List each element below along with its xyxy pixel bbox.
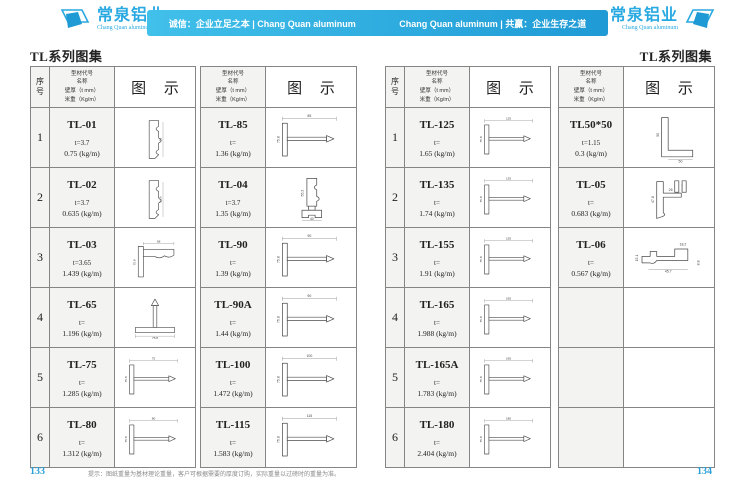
profile-spec-cell: TL50*50t=1.150.3 (kg/m) <box>559 108 624 168</box>
profile-thickness: t= <box>201 319 265 327</box>
profile-row <box>559 348 715 408</box>
row-index: 1 <box>386 108 405 168</box>
row-index: 3 <box>31 228 50 288</box>
series-title-right: TL系列图集 <box>640 46 712 65</box>
profile-code: TL-90 <box>201 239 265 251</box>
profile-weight: 0.3 (kg/m) <box>559 149 623 158</box>
col-header-index: 序号 <box>386 67 405 108</box>
row-index: 6 <box>386 408 405 468</box>
svg-text:75.8: 75.8 <box>277 316 281 323</box>
profile-row: TL-115t=1.583 (kg/m)11575.8 <box>201 408 357 468</box>
svg-text:155: 155 <box>506 236 511 240</box>
profile-diagram-cell: 58 <box>115 108 196 168</box>
profile-table: 序号型材代号名称壁厚（t mm）米重（Kg/m）图 示1TL-125t=1.65… <box>385 66 551 468</box>
profile-diagram-cell: 15575.8 <box>470 228 551 288</box>
profile-row: TL-90t=1.39 (kg/m)9075.8 <box>201 228 357 288</box>
header-banner: 诚信：企业立足之本 | Chang Quan aluminum Chang Qu… <box>147 10 608 36</box>
page-number-left: 133 <box>30 466 45 477</box>
table-header-row: 型材代号名称壁厚（t mm）米重（Kg/m）图 示 <box>559 67 715 108</box>
profile-spec-cell: TL-155t=1.91 (kg/m) <box>405 228 470 288</box>
profile-table-2: 型材代号名称壁厚（t mm）米重（Kg/m）图 示TL-85t=1.36 (kg… <box>200 66 357 468</box>
svg-text:47.8: 47.8 <box>651 196 655 203</box>
profile-row: 5TL-75t=1.285 (kg/m)7575.8 <box>31 348 196 408</box>
profile-thickness: t= <box>405 439 469 447</box>
profile-spec-cell: TL-75t=1.285 (kg/m) <box>50 348 115 408</box>
svg-text:90: 90 <box>307 294 311 298</box>
profile-row: 3TL-03t=3.651.439 (kg/m)6875.8 <box>31 228 196 288</box>
profile-spec-cell: TL-05t=0.683 (kg/m) <box>559 168 624 228</box>
profile-weight: 1.312 (kg/m) <box>50 449 114 458</box>
svg-text:85: 85 <box>307 114 311 118</box>
profile-diagram-cell: 10075.8 <box>266 348 357 408</box>
profile-code: TL-04 <box>201 179 265 191</box>
profile-code: TL-03 <box>50 239 114 251</box>
profile-diagram: 18075.8 <box>470 410 550 466</box>
profile-code: TL-155 <box>405 239 469 251</box>
profile-spec-cell: TL-06t=0.567 (kg/m) <box>559 228 624 288</box>
profile-code: TL-115 <box>201 419 265 431</box>
profile-spec-cell: TL-165t=1.988 (kg/m) <box>405 288 470 348</box>
profile-thickness: t=3.65 <box>50 259 114 267</box>
profile-thickness: t=3.7 <box>50 139 114 147</box>
svg-text:18.2: 18.2 <box>680 242 687 246</box>
profile-code: TL-100 <box>201 359 265 371</box>
profile-diagram: 16575.8 <box>470 290 550 346</box>
profile-spec-cell: TL-80t=1.312 (kg/m) <box>50 408 115 468</box>
svg-text:165: 165 <box>506 296 511 300</box>
profile-diagram-cell <box>624 288 715 348</box>
profile-spec-cell <box>559 288 624 348</box>
row-index: 4 <box>386 288 405 348</box>
profile-code: TL-01 <box>50 119 114 131</box>
profile-diagram: 16575.8 <box>470 350 550 406</box>
banner-slogan-left: 诚信：企业立足之本 | Chang Quan aluminum <box>169 17 356 30</box>
profile-diagram-cell: 55.240 <box>266 168 357 228</box>
profile-code: TL-02 <box>50 179 114 191</box>
col-header-spec: 型材代号名称壁厚（t mm）米重（Kg/m） <box>405 67 470 108</box>
profile-row: 6TL-180t=2.404 (kg/m)18075.8 <box>386 408 551 468</box>
svg-text:75.8: 75.8 <box>277 376 281 383</box>
profile-diagram: 7575.8 <box>115 350 195 406</box>
profile-row: 2TL-02t=3.70.635 (kg/m)54.6 <box>31 168 196 228</box>
col-header-spec: 型材代号名称壁厚（t mm）米重（Kg/m） <box>50 67 115 108</box>
brand-name: 常泉铝业 <box>610 8 678 24</box>
profile-code: TL-165A <box>405 359 469 371</box>
profile-code: TL-165 <box>405 299 469 311</box>
profile-row: 2TL-135t=1.74 (kg/m)13575.8 <box>386 168 551 228</box>
profile-table: 型材代号名称壁厚（t mm）米重（Kg/m）图 示TL50*50t=1.150.… <box>558 66 715 468</box>
row-index: 5 <box>31 348 50 408</box>
profile-table-1: 序号型材代号名称壁厚（t mm）米重（Kg/m）图 示1TL-01t=3.70.… <box>30 66 196 468</box>
profile-row: TL50*50t=1.150.3 (kg/m)5050 <box>559 108 715 168</box>
profile-weight: 0.567 (kg/m) <box>559 269 623 278</box>
profile-code: TL-06 <box>559 239 623 251</box>
profile-row: 5TL-165At=1.783 (kg/m)16575.8 <box>386 348 551 408</box>
page-number-right: 134 <box>697 466 712 477</box>
row-index: 2 <box>386 168 405 228</box>
profile-spec-cell: TL-03t=3.651.439 (kg/m) <box>50 228 115 288</box>
svg-text:75.8: 75.8 <box>479 316 483 322</box>
profile-diagram-cell: 16575.8 <box>470 288 551 348</box>
profile-spec-cell: TL-04t=3.71.35 (kg/m) <box>201 168 266 228</box>
profile-spec-cell: TL-180t=2.404 (kg/m) <box>405 408 470 468</box>
profile-thickness: t= <box>559 259 623 267</box>
profile-table: 序号型材代号名称壁厚（t mm）米重（Kg/m）图 示1TL-01t=3.70.… <box>30 66 196 468</box>
svg-text:80: 80 <box>152 416 156 420</box>
profile-row: 6TL-80t=1.312 (kg/m)8075.8 <box>31 408 196 468</box>
profile-row <box>559 288 715 348</box>
profile-thickness: t= <box>559 199 623 207</box>
svg-text:58: 58 <box>159 137 163 141</box>
svg-text:75.8: 75.8 <box>133 259 137 265</box>
svg-text:75.8: 75.8 <box>152 336 158 340</box>
svg-text:40: 40 <box>310 216 314 220</box>
svg-text:125: 125 <box>506 116 511 120</box>
col-header-index: 序号 <box>31 67 50 108</box>
svg-text:75.8: 75.8 <box>479 376 483 382</box>
profile-weight: 1.783 (kg/m) <box>405 389 469 398</box>
profile-diagram-cell: 18075.8 <box>470 408 551 468</box>
profile-diagram-cell: 6875.8 <box>115 228 196 288</box>
profile-thickness: t=3.7 <box>201 199 265 207</box>
row-index: 2 <box>31 168 50 228</box>
profile-row: 4TL-165t=1.988 (kg/m)16575.8 <box>386 288 551 348</box>
profile-thickness: t= <box>405 139 469 147</box>
profile-diagram-cell: 54.6 <box>115 168 196 228</box>
footer-note: 提示：图纸重量为基材理论重量，客户可根据需要的厚度订购，实际重量以过磅时的重量为… <box>88 469 340 478</box>
svg-text:8.8: 8.8 <box>696 260 700 265</box>
profile-spec-cell <box>559 348 624 408</box>
profile-thickness: t= <box>405 199 469 207</box>
svg-text:26: 26 <box>669 188 673 192</box>
profile-code: TL-125 <box>405 119 469 131</box>
brand-diamond-icon <box>56 6 92 34</box>
profile-spec-cell: TL-65t=1.196 (kg/m) <box>50 288 115 348</box>
col-header-diagram: 图 示 <box>115 67 196 108</box>
profile-spec-cell: TL-85t=1.36 (kg/m) <box>201 108 266 168</box>
profile-code: TL-180 <box>405 419 469 431</box>
profile-diagram-cell: 9075.8 <box>266 228 357 288</box>
profile-weight: 1.91 (kg/m) <box>405 269 469 278</box>
profile-code: TL-135 <box>405 179 469 191</box>
brand-subtitle: Chang Quan aluminum <box>610 24 678 32</box>
profile-row: TL-05t=0.683 (kg/m)47.8262124.5 <box>559 168 715 228</box>
profile-row: TL-04t=3.71.35 (kg/m)55.240 <box>201 168 357 228</box>
profile-row: 4TL-65t=1.196 (kg/m)75.8 <box>31 288 196 348</box>
profile-code: TL-80 <box>50 419 114 431</box>
profile-weight: 1.285 (kg/m) <box>50 389 114 398</box>
profile-diagram: 8575.8 <box>266 110 356 166</box>
svg-text:115: 115 <box>307 414 313 418</box>
table-header-row: 序号型材代号名称壁厚（t mm）米重（Kg/m）图 示 <box>386 67 551 108</box>
profile-diagram: 18.215.18.845.7 <box>624 230 714 286</box>
profile-spec-cell: TL-90t=1.39 (kg/m) <box>201 228 266 288</box>
profile-row: 1TL-125t=1.65 (kg/m)12575.8 <box>386 108 551 168</box>
brand-diamond-icon <box>683 6 719 34</box>
col-header-spec: 型材代号名称壁厚（t mm）米重（Kg/m） <box>559 67 624 108</box>
profile-weight: 1.65 (kg/m) <box>405 149 469 158</box>
profile-weight: 2.404 (kg/m) <box>405 449 469 458</box>
profile-diagram-cell: 7575.8 <box>115 348 196 408</box>
profile-diagram: 47.8262124.5 <box>624 170 714 226</box>
profile-spec-cell: TL-90At=1.44 (kg/m) <box>201 288 266 348</box>
svg-text:15.1: 15.1 <box>635 254 639 261</box>
profile-weight: 1.74 (kg/m) <box>405 209 469 218</box>
col-header-diagram: 图 示 <box>266 67 357 108</box>
profile-row: 1TL-01t=3.70.75 (kg/m)58 <box>31 108 196 168</box>
profile-row: TL-85t=1.36 (kg/m)8575.8 <box>201 108 357 168</box>
profile-row: TL-06t=0.567 (kg/m)18.215.18.845.7 <box>559 228 715 288</box>
profile-spec-cell: TL-115t=1.583 (kg/m) <box>201 408 266 468</box>
profile-weight: 0.75 (kg/m) <box>50 149 114 158</box>
profile-weight: 1.196 (kg/m) <box>50 329 114 338</box>
svg-text:75.8: 75.8 <box>124 436 128 442</box>
svg-text:50: 50 <box>679 159 683 163</box>
brand-logo-right: 常泉铝业 Chang Quan aluminum <box>610 6 719 34</box>
svg-text:45.7: 45.7 <box>665 269 672 273</box>
profile-thickness: t=1.15 <box>559 139 623 147</box>
profile-diagram-cell: 12575.8 <box>470 108 551 168</box>
profile-weight: 1.36 (kg/m) <box>201 149 265 158</box>
profile-spec-cell: TL-125t=1.65 (kg/m) <box>405 108 470 168</box>
profile-diagram: 54.6 <box>115 170 195 226</box>
profile-spec-cell: TL-01t=3.70.75 (kg/m) <box>50 108 115 168</box>
col-header-diagram: 图 示 <box>470 67 551 108</box>
svg-text:75.8: 75.8 <box>277 436 281 443</box>
svg-text:165: 165 <box>506 356 511 360</box>
profile-weight: 1.472 (kg/m) <box>201 389 265 398</box>
profile-weight: 1.39 (kg/m) <box>201 269 265 278</box>
svg-text:75.8: 75.8 <box>277 256 281 263</box>
profile-diagram: 6875.8 <box>115 230 195 286</box>
profile-thickness: t= <box>405 319 469 327</box>
svg-text:75.8: 75.8 <box>479 196 483 202</box>
profile-diagram-cell <box>624 348 715 408</box>
profile-diagram-cell: 9075.8 <box>266 288 357 348</box>
row-index: 4 <box>31 288 50 348</box>
profile-code: TL-85 <box>201 119 265 131</box>
svg-text:100: 100 <box>306 354 312 358</box>
profile-diagram: 13575.8 <box>470 170 550 226</box>
profile-diagram: 12575.8 <box>470 110 550 166</box>
table-header-row: 序号型材代号名称壁厚（t mm）米重（Kg/m）图 示 <box>31 67 196 108</box>
profile-diagram: 11575.8 <box>266 410 356 466</box>
profile-diagram: 58 <box>115 110 195 166</box>
profile-weight: 1.44 (kg/m) <box>201 329 265 338</box>
profile-diagram-cell: 18.215.18.845.7 <box>624 228 715 288</box>
col-header-spec: 型材代号名称壁厚（t mm）米重（Kg/m） <box>201 67 266 108</box>
profile-diagram: 9075.8 <box>266 230 356 286</box>
catalog-spread: 常泉铝业 Chang Quan aluminum 诚信：企业立足之本 | Cha… <box>0 0 730 498</box>
profile-diagram: 9075.8 <box>266 290 356 346</box>
svg-text:90: 90 <box>307 234 311 238</box>
profile-row <box>559 408 715 468</box>
profile-code: TL-75 <box>50 359 114 371</box>
profile-diagram-cell: 11575.8 <box>266 408 357 468</box>
profile-diagram-cell: 8075.8 <box>115 408 196 468</box>
svg-text:54.6: 54.6 <box>159 196 163 202</box>
profile-thickness: t= <box>201 379 265 387</box>
profile-spec-cell: TL-135t=1.74 (kg/m) <box>405 168 470 228</box>
svg-text:75.8: 75.8 <box>124 376 128 382</box>
svg-text:75.8: 75.8 <box>479 256 483 262</box>
profile-diagram-cell: 75.8 <box>115 288 196 348</box>
col-header-diagram: 图 示 <box>624 67 715 108</box>
profile-table: 型材代号名称壁厚（t mm）米重（Kg/m）图 示TL-85t=1.36 (kg… <box>200 66 357 468</box>
profile-thickness: t= <box>50 439 114 447</box>
profile-thickness: t= <box>405 379 469 387</box>
svg-text:68: 68 <box>157 239 161 243</box>
svg-text:135: 135 <box>506 176 511 180</box>
svg-text:50: 50 <box>656 132 660 136</box>
profile-weight: 1.988 (kg/m) <box>405 329 469 338</box>
profile-table-3: 序号型材代号名称壁厚（t mm）米重（Kg/m）图 示1TL-125t=1.65… <box>385 66 551 468</box>
profile-diagram: 75.8 <box>115 290 195 346</box>
profile-row: TL-90At=1.44 (kg/m)9075.8 <box>201 288 357 348</box>
row-index: 3 <box>386 228 405 288</box>
profile-code: TL50*50 <box>559 119 623 131</box>
profile-thickness: t= <box>405 259 469 267</box>
profile-spec-cell <box>559 408 624 468</box>
series-title-left: TL系列图集 <box>30 46 102 65</box>
profile-thickness: t= <box>201 139 265 147</box>
profile-diagram: 55.240 <box>266 170 356 226</box>
svg-text:75.8: 75.8 <box>277 136 281 143</box>
profile-code: TL-65 <box>50 299 114 311</box>
svg-text:180: 180 <box>506 416 511 420</box>
profile-row: TL-100t=1.472 (kg/m)10075.8 <box>201 348 357 408</box>
profile-code: TL-90A <box>201 299 265 311</box>
profile-diagram-cell <box>624 408 715 468</box>
profile-thickness: t= <box>50 319 114 327</box>
profile-weight: 0.683 (kg/m) <box>559 209 623 218</box>
profile-weight: 1.35 (kg/m) <box>201 209 265 218</box>
row-index: 1 <box>31 108 50 168</box>
profile-table-4: 型材代号名称壁厚（t mm）米重（Kg/m）图 示TL50*50t=1.150.… <box>558 66 715 468</box>
profile-diagram-cell: 13575.8 <box>470 168 551 228</box>
banner-slogan-right: Chang Quan aluminum | 共赢：企业生存之道 <box>399 17 586 30</box>
row-index: 5 <box>386 348 405 408</box>
profile-thickness: t=3.7 <box>50 199 114 207</box>
profile-diagram: 8075.8 <box>115 410 195 466</box>
svg-text:75.8: 75.8 <box>479 136 483 142</box>
profile-spec-cell: TL-02t=3.70.635 (kg/m) <box>50 168 115 228</box>
profile-weight: 1.583 (kg/m) <box>201 449 265 458</box>
profile-thickness: t= <box>201 259 265 267</box>
profile-row: 3TL-155t=1.91 (kg/m)15575.8 <box>386 228 551 288</box>
table-header-row: 型材代号名称壁厚（t mm）米重（Kg/m）图 示 <box>201 67 357 108</box>
profile-diagram-cell: 16575.8 <box>470 348 551 408</box>
profile-diagram-cell: 5050 <box>624 108 715 168</box>
row-index: 6 <box>31 408 50 468</box>
profile-weight: 0.635 (kg/m) <box>50 209 114 218</box>
profile-diagram: 10075.8 <box>266 350 356 406</box>
profile-spec-cell: TL-165At=1.783 (kg/m) <box>405 348 470 408</box>
profile-thickness: t= <box>201 439 265 447</box>
profile-thickness: t= <box>50 379 114 387</box>
profile-diagram-cell: 47.8262124.5 <box>624 168 715 228</box>
profile-code: TL-05 <box>559 179 623 191</box>
profile-weight: 1.439 (kg/m) <box>50 269 114 278</box>
profile-diagram-cell: 8575.8 <box>266 108 357 168</box>
profile-diagram: 15575.8 <box>470 230 550 286</box>
profile-diagram: 5050 <box>624 110 714 166</box>
svg-text:55.2: 55.2 <box>301 189 305 196</box>
svg-text:75: 75 <box>152 356 156 360</box>
svg-text:75.8: 75.8 <box>479 436 483 442</box>
profile-spec-cell: TL-100t=1.472 (kg/m) <box>201 348 266 408</box>
